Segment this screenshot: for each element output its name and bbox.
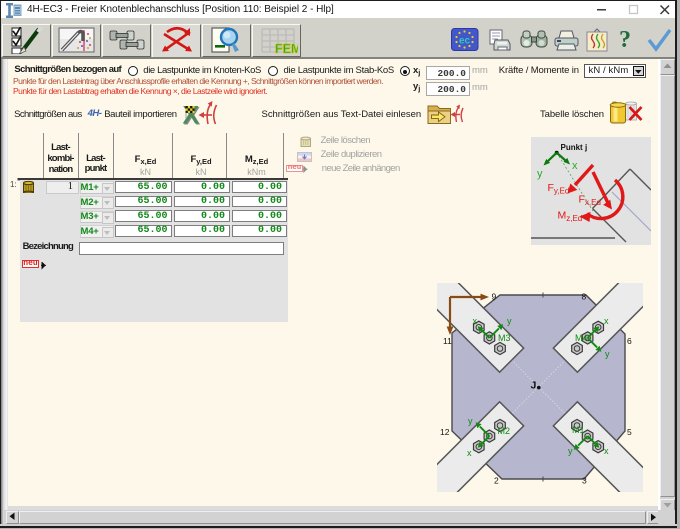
- svg-text:x: x: [473, 316, 478, 326]
- svg-text:FEM: FEM: [275, 42, 298, 54]
- svg-text:y: y: [568, 446, 573, 456]
- svg-text:J: J: [531, 380, 537, 392]
- svg-text:x: x: [604, 446, 609, 456]
- svg-text:y: y: [468, 416, 473, 426]
- svg-text:M4: M4: [575, 333, 588, 343]
- svg-text:M1: M1: [572, 425, 585, 435]
- svg-text:Punkt j: Punkt j: [561, 143, 588, 152]
- svg-text:ec: ec: [459, 36, 471, 47]
- svg-text:y: y: [605, 349, 610, 359]
- svg-text:y: y: [537, 168, 543, 180]
- svg-text:3: 3: [582, 476, 587, 486]
- svg-text:y: y: [507, 316, 512, 326]
- svg-text:x: x: [467, 448, 472, 458]
- svg-text:5: 5: [627, 427, 632, 437]
- svg-text:6: 6: [627, 336, 632, 346]
- svg-text:12: 12: [440, 427, 450, 437]
- svg-text:?: ?: [619, 27, 631, 52]
- svg-text:x: x: [604, 316, 609, 326]
- svg-text:2: 2: [494, 476, 499, 486]
- svg-text:11: 11: [443, 336, 452, 346]
- svg-text:M2: M2: [498, 426, 511, 436]
- svg-text:x: x: [572, 160, 578, 172]
- svg-text:9: 9: [492, 292, 497, 302]
- svg-text:8: 8: [582, 292, 587, 302]
- svg-text:M3: M3: [498, 333, 511, 343]
